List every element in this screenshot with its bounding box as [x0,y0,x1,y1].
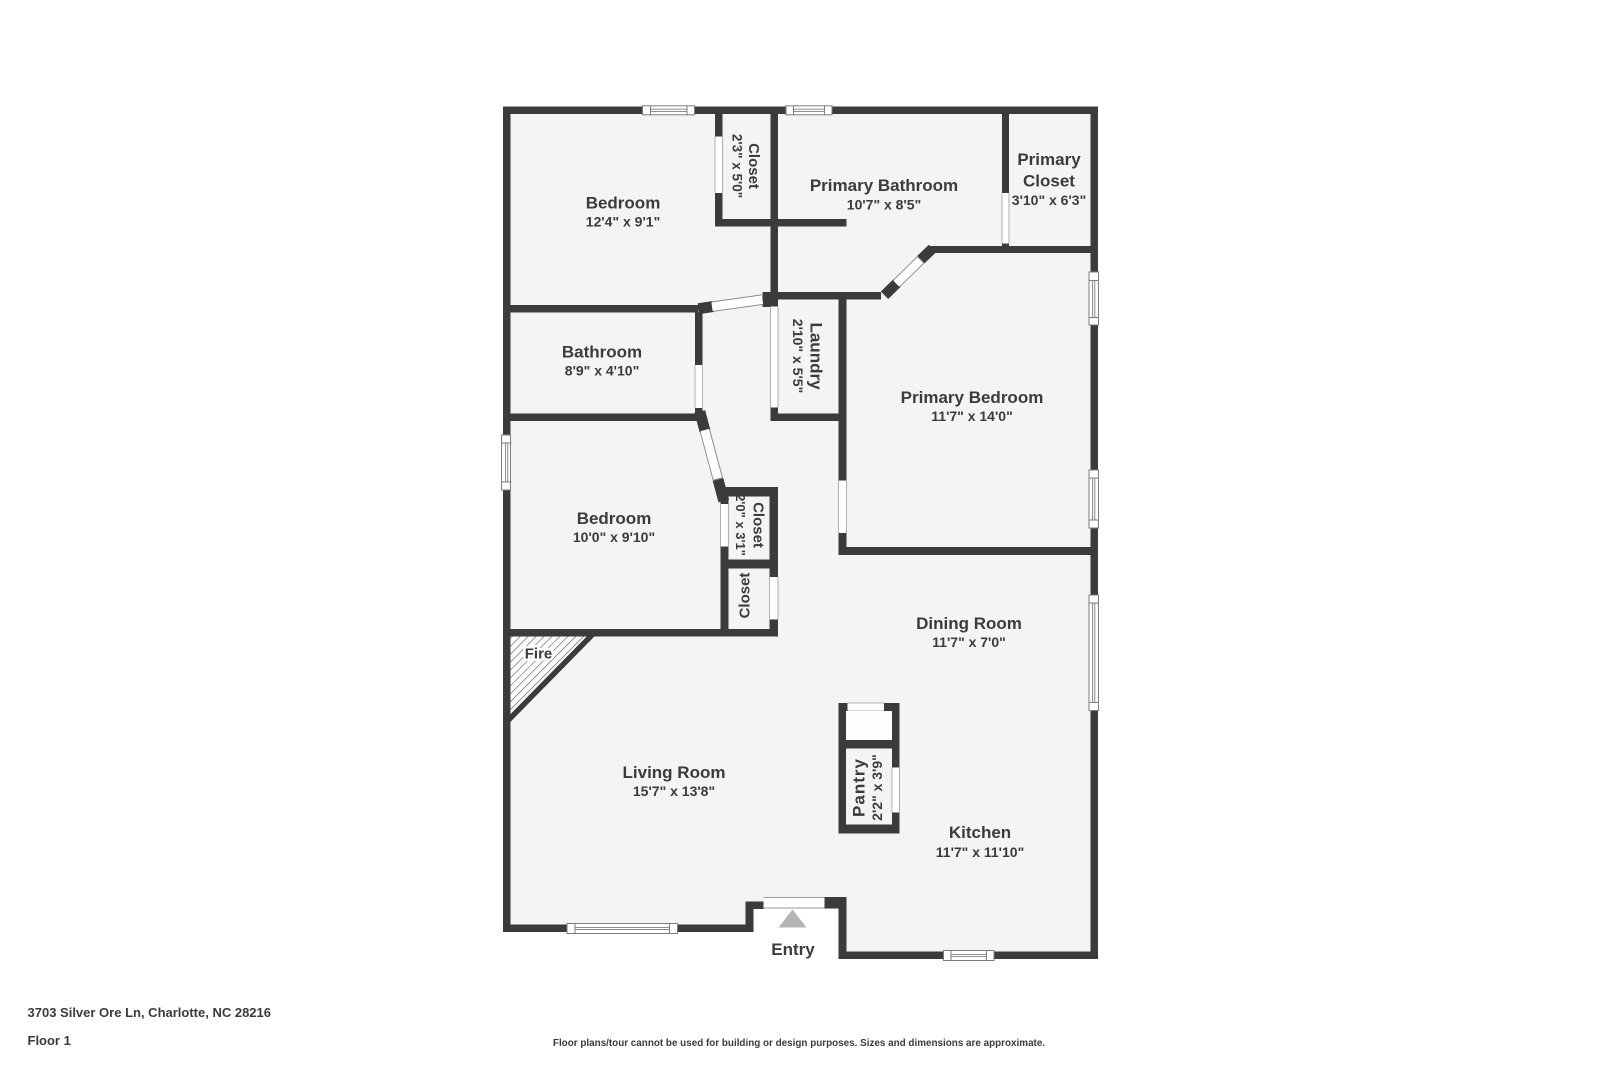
svg-text:3703 Silver Ore Ln, Charlotte,: 3703 Silver Ore Ln, Charlotte, NC 28216 [28,1005,272,1020]
svg-text:Dining Room: Dining Room [916,614,1022,633]
svg-text:Entry: Entry [771,940,815,959]
svg-text:15'7" x 13'8": 15'7" x 13'8" [633,783,715,799]
svg-text:Bathroom: Bathroom [562,343,642,362]
svg-text:Closet: Closet [750,502,767,548]
svg-text:Closet: Closet [745,143,762,189]
svg-text:Bedroom: Bedroom [586,194,661,213]
svg-text:Closet: Closet [737,573,754,619]
svg-text:Living Room: Living Room [623,763,726,782]
svg-text:10'0" x 9'10": 10'0" x 9'10" [573,529,655,545]
svg-text:Floor plans/tour cannot be use: Floor plans/tour cannot be used for buil… [553,1038,1045,1049]
svg-text:Primary: Primary [1017,150,1081,169]
svg-text:2'10" x 5'5": 2'10" x 5'5" [790,319,806,393]
svg-text:11'7" x 11'10": 11'7" x 11'10" [936,844,1024,860]
svg-text:Bedroom: Bedroom [577,509,652,528]
svg-text:2'0" x 3'1": 2'0" x 3'1" [733,494,748,556]
svg-text:3'10" x 6'3": 3'10" x 6'3" [1012,192,1086,208]
svg-text:8'9" x 4'10": 8'9" x 4'10" [565,363,639,379]
svg-text:Primary Bedroom: Primary Bedroom [901,388,1044,407]
svg-text:11'7" x 7'0": 11'7" x 7'0" [932,634,1006,650]
svg-text:Closet: Closet [1023,172,1075,191]
svg-text:Laundry: Laundry [807,322,826,390]
svg-text:Primary Bathroom: Primary Bathroom [810,176,958,195]
svg-text:12'4" x 9'1": 12'4" x 9'1" [586,214,660,230]
svg-text:10'7" x 8'5": 10'7" x 8'5" [847,197,921,213]
svg-text:11'7" x 14'0": 11'7" x 14'0" [931,408,1012,424]
svg-text:Floor 1: Floor 1 [28,1033,71,1048]
svg-text:2'2" x 3'9": 2'2" x 3'9" [869,754,885,821]
svg-text:Pantry: Pantry [850,758,869,817]
svg-text:2'3" x 5'0": 2'3" x 5'0" [730,134,745,198]
svg-text:Fire: Fire [525,646,553,663]
svg-text:Kitchen: Kitchen [949,823,1011,842]
